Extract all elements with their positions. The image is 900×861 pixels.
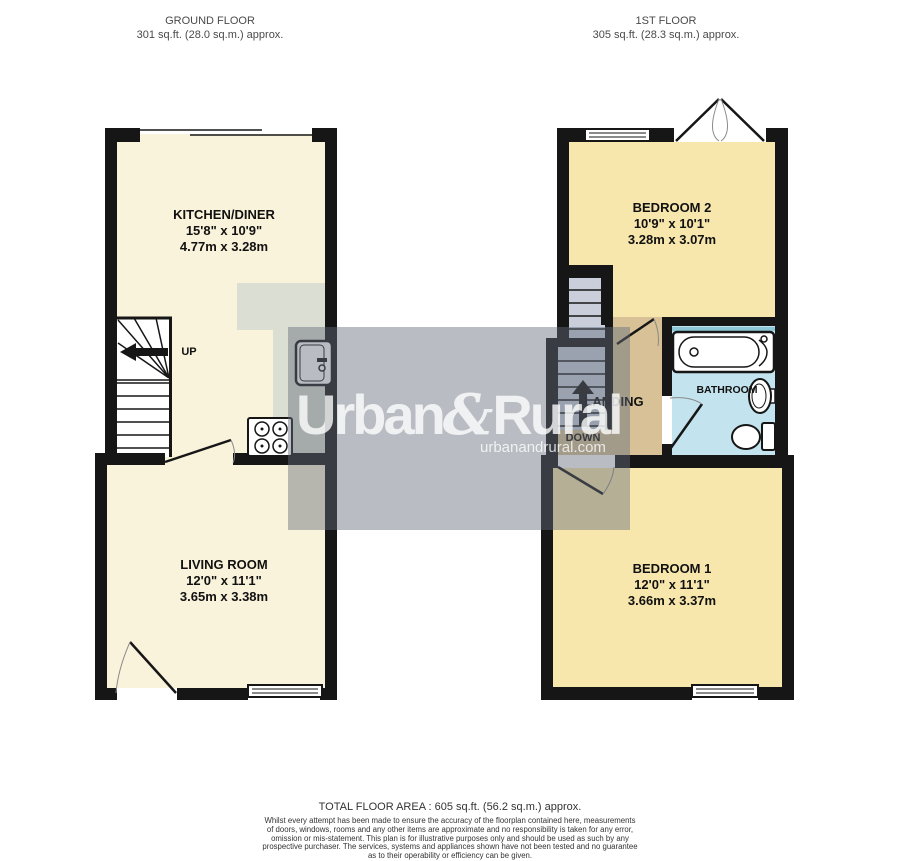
kitchen-name: KITCHEN/DINER bbox=[173, 207, 275, 223]
living-size-imperial: 12'0" x 11'1" bbox=[180, 573, 268, 589]
kitchen-window bbox=[140, 130, 318, 135]
bedroom1-window bbox=[692, 685, 758, 697]
bathroom-door bbox=[668, 398, 702, 452]
bedroom2-size-metric: 3.28m x 3.07m bbox=[628, 232, 716, 248]
bedroom1-label: BEDROOM 1 12'0" x 11'1" 3.66m x 3.37m bbox=[628, 561, 716, 609]
bedroom2-name: BEDROOM 2 bbox=[628, 200, 716, 216]
up-arrow-icon bbox=[120, 343, 168, 361]
watermark-brand-b: Rural bbox=[492, 383, 620, 446]
hob-icon bbox=[248, 418, 292, 456]
kitchen-size-imperial: 15'8" x 10'9" bbox=[173, 223, 275, 239]
french-doors bbox=[676, 99, 764, 141]
watermark-website: urbanandrural.com bbox=[480, 439, 606, 456]
kitchen-size-metric: 4.77m x 3.28m bbox=[173, 239, 275, 255]
up-label: UP bbox=[181, 346, 196, 358]
living-name: LIVING ROOM bbox=[180, 557, 268, 573]
watermark-band: Urban&Rural urbanandrural.com bbox=[288, 327, 630, 530]
living-room-label: LIVING ROOM 12'0" x 11'1" 3.65m x 3.38m bbox=[180, 557, 268, 605]
disclaimer: Whilst every attempt has been made to en… bbox=[262, 817, 637, 861]
kitchen-label: KITCHEN/DINER 15'8" x 10'9" 4.77m x 3.28… bbox=[173, 207, 275, 255]
kitchen-living-door bbox=[165, 440, 235, 463]
total-floor-area: TOTAL FLOOR AREA : 605 sq.ft. (56.2 sq.m… bbox=[262, 801, 637, 813]
living-room-window bbox=[248, 685, 322, 697]
bedroom2-window bbox=[585, 129, 650, 141]
bedroom2-label: BEDROOM 2 10'9" x 10'1" 3.28m x 3.07m bbox=[628, 200, 716, 248]
bedroom1-size-metric: 3.66m x 3.37m bbox=[628, 593, 716, 609]
bathtub-icon bbox=[673, 332, 774, 372]
bedroom1-name: BEDROOM 1 bbox=[628, 561, 716, 577]
watermark-brand-a: Urban bbox=[296, 383, 443, 446]
watermark-brand: Urban&Rural bbox=[296, 385, 621, 445]
toilet-icon bbox=[732, 423, 775, 450]
gf-stairs-detail bbox=[117, 317, 172, 457]
bedroom2-size-imperial: 10'9" x 10'1" bbox=[628, 216, 716, 232]
footer: TOTAL FLOOR AREA : 605 sq.ft. (56.2 sq.m… bbox=[262, 801, 637, 861]
bedroom1-size-imperial: 12'0" x 11'1" bbox=[628, 577, 716, 593]
living-room-entry-door bbox=[116, 642, 176, 693]
floorplan-canvas: GROUND FLOOR 301 sq.ft. (28.0 sq.m.) app… bbox=[0, 0, 900, 861]
bathroom-label: BATHROOM bbox=[696, 384, 757, 396]
living-size-metric: 3.65m x 3.38m bbox=[180, 589, 268, 605]
